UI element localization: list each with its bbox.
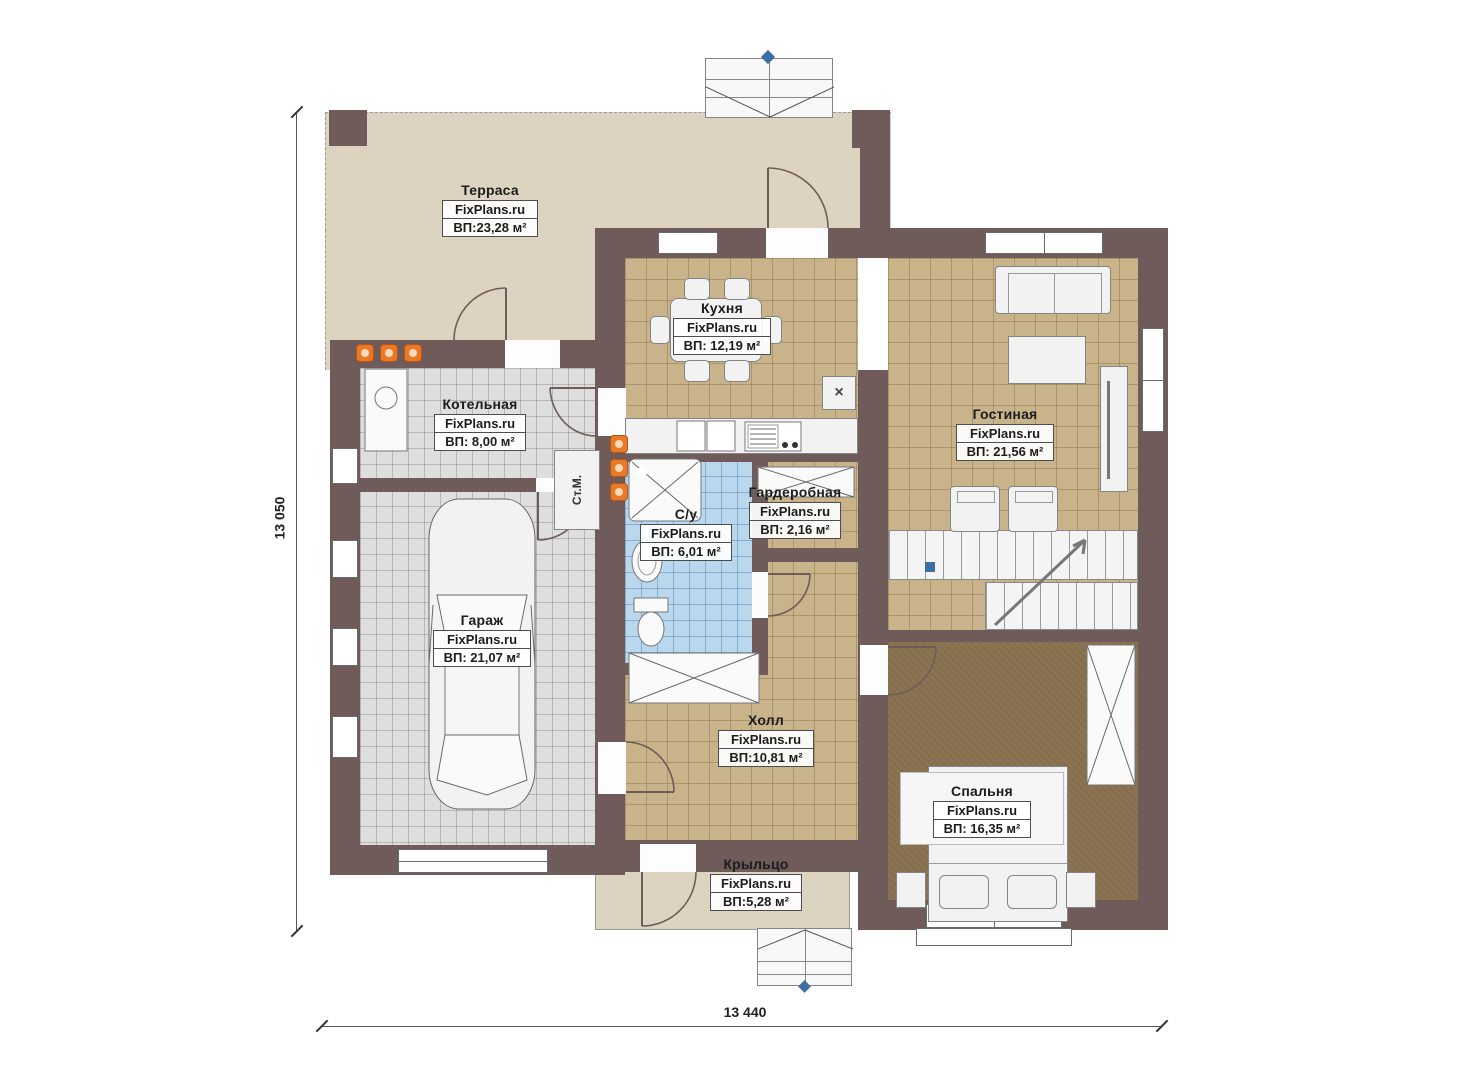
room-name: Гостиная — [925, 406, 1085, 422]
bedroom-wardrobe-icon — [1086, 644, 1136, 786]
room-area: ВП:5,28 м² — [711, 893, 801, 910]
terrace-pillar-left — [329, 110, 367, 146]
radiator-icon — [610, 483, 628, 501]
radiator-icon — [610, 459, 628, 477]
room-area: ВП: 8,00 м² — [435, 433, 525, 450]
door-opening-bedroom — [860, 645, 888, 695]
dining-chair — [684, 360, 710, 382]
brand-text: FixPlans.ru — [674, 319, 771, 337]
room-name: Холл — [686, 712, 846, 728]
radiator-icon — [380, 344, 398, 362]
door-arc-terrace-kitchen — [766, 164, 830, 230]
dining-chair — [724, 360, 750, 382]
room-name: Котельная — [400, 396, 560, 412]
porch-steps — [757, 928, 852, 986]
stairs-start-marker — [925, 562, 935, 572]
room-label-kitchen: Кухня FixPlans.ru ВП: 12,19 м² — [642, 300, 802, 355]
radiator-icon — [404, 344, 422, 362]
nightstand — [896, 872, 926, 908]
sofa — [995, 266, 1111, 314]
nightstand — [1066, 872, 1096, 908]
dining-chair — [684, 278, 710, 300]
door-opening-garage-hall — [598, 742, 626, 794]
garage-left-window-3 — [332, 628, 358, 666]
armchair — [950, 486, 1000, 532]
door-arc-bedroom — [886, 645, 938, 697]
room-label-garage: Гараж FixPlans.ru ВП: 21,07 м² — [402, 612, 562, 667]
vent-box: × — [822, 376, 856, 410]
brand-text: FixPlans.ru — [641, 525, 731, 543]
dimension-width-text: 13 440 — [700, 1004, 790, 1020]
tv-stand — [1100, 366, 1128, 492]
radiator-icon — [610, 435, 628, 453]
door-arc-bathroom — [766, 572, 812, 618]
door-opening-terrace-kitchen — [766, 228, 828, 258]
room-name: Гараж — [402, 612, 562, 628]
brand-text: FixPlans.ru — [957, 425, 1054, 443]
floor-plan-canvas: × Ст.М. — [0, 0, 1474, 1080]
room-area: ВП: 21,07 м² — [434, 649, 531, 666]
kitchen-sink-icon — [744, 421, 802, 452]
pillow — [1007, 875, 1057, 909]
garage-left-window-4 — [332, 716, 358, 758]
brand-text: FixPlans.ru — [435, 415, 525, 433]
wall-hall-bedroom-divider — [858, 560, 888, 900]
garage-door — [398, 849, 548, 873]
garage-left-window-1 — [332, 448, 358, 484]
terrace-steps — [705, 58, 833, 118]
garage-left-window-2 — [332, 540, 358, 578]
room-name: Гардеробная — [715, 484, 875, 500]
terrace-pillar-right — [852, 110, 890, 148]
brand-text: FixPlans.ru — [443, 201, 536, 219]
wall-terrace-strip — [860, 148, 890, 228]
room-name: Крыльцо — [676, 856, 836, 872]
coffee-table — [1008, 336, 1086, 384]
dimension-height-text: 13 050 — [271, 497, 287, 540]
room-label-hall: Холл FixPlans.ru ВП:10,81 м² — [686, 712, 846, 767]
room-area: ВП: 12,19 м² — [674, 337, 771, 354]
stairs-direction-arrow — [985, 530, 1138, 630]
wall-stairs-bedroom-divider — [888, 630, 1138, 642]
room-area: ВП:23,28 м² — [443, 219, 536, 236]
room-name: С/у — [606, 506, 766, 522]
room-label-terrace: Терраса FixPlans.ru ВП:23,28 м² — [410, 182, 570, 237]
door-arc-terrace-boiler — [452, 286, 508, 342]
washing-machine: Ст.М. — [554, 450, 600, 530]
dimension-tick — [291, 925, 304, 938]
bedroom-window-sill — [916, 928, 1072, 946]
armchair — [1008, 486, 1058, 532]
door-opening-boiler-kitchen — [598, 388, 626, 436]
door-opening-terrace-boiler — [505, 340, 560, 368]
room-name: Кухня — [642, 300, 802, 316]
radiator-icon — [356, 344, 374, 362]
washing-machine-label: Ст.М. — [570, 475, 584, 505]
living-right-window — [1142, 328, 1164, 432]
wall-wardrobe-bottom — [752, 548, 858, 562]
room-label-porch: Крыльцо FixPlans.ru ВП:5,28 м² — [676, 856, 836, 911]
toilet-icon — [632, 596, 670, 648]
living-top-window — [985, 232, 1103, 254]
room-name: Спальня — [907, 783, 1057, 799]
stove-icon — [676, 420, 738, 452]
dimension-tick — [291, 106, 304, 119]
dimension-line-width — [322, 1026, 1162, 1027]
room-label-boiler: Котельная FixPlans.ru ВП: 8,00 м² — [400, 396, 560, 451]
room-area: ВП:10,81 м² — [719, 749, 812, 766]
room-label-living: Гостиная FixPlans.ru ВП: 21,56 м² — [925, 406, 1085, 461]
wall-left-garage — [330, 340, 360, 875]
kitchen-counter — [625, 418, 858, 454]
door-arc-garage-hall — [624, 740, 676, 794]
room-area: ВП: 16,35 м² — [934, 820, 1031, 837]
room-label-bathroom: С/у FixPlans.ru ВП: 6,01 м² — [606, 506, 766, 561]
room-area: ВП: 21,56 м² — [957, 443, 1054, 460]
brand-text: FixPlans.ru — [719, 731, 812, 749]
room-name: Терраса — [410, 182, 570, 198]
hall-closet-icon — [628, 652, 760, 704]
dining-chair — [724, 278, 750, 300]
brand-text: FixPlans.ru — [711, 875, 801, 893]
wall-top-boiler — [330, 340, 625, 368]
room-area: ВП: 6,01 м² — [641, 543, 731, 560]
brand-text: FixPlans.ru — [934, 802, 1031, 820]
dimension-line-height — [296, 112, 297, 932]
kitchen-top-window — [658, 232, 718, 254]
brand-text: FixPlans.ru — [434, 631, 531, 649]
room-label-bedroom: Спальня FixPlans.ru ВП: 16,35 м² — [900, 772, 1064, 845]
pillow — [939, 875, 989, 909]
